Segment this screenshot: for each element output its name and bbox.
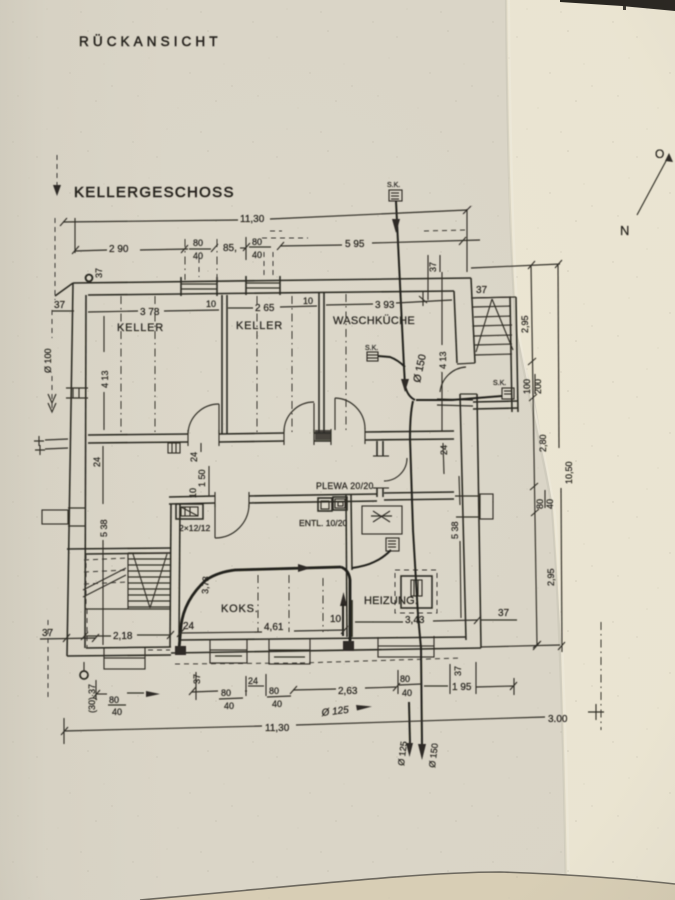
svg-text:4,61: 4,61	[264, 622, 284, 633]
svg-text:24: 24	[439, 445, 449, 455]
svg-text:S.K.: S.K.	[387, 182, 400, 189]
svg-text:100: 100	[522, 379, 532, 394]
svg-text:S.K.: S.K.	[493, 380, 506, 387]
svg-text:3 78: 3 78	[140, 307, 160, 318]
svg-text:ENTL. 10/20: ENTL. 10/20	[299, 518, 347, 528]
svg-text:KELLER: KELLER	[236, 320, 283, 332]
svg-text:37: 37	[192, 674, 202, 684]
svg-text:10: 10	[303, 296, 313, 306]
svg-text:4 13: 4 13	[438, 351, 448, 369]
svg-text:24: 24	[92, 457, 102, 467]
svg-text:WASCHKÜCHE: WASCHKÜCHE	[333, 315, 415, 327]
svg-text:1 50: 1 50	[197, 469, 207, 487]
svg-text:HEIZUNG.: HEIZUNG.	[364, 595, 418, 607]
svg-text:10: 10	[188, 488, 198, 498]
svg-text:10,50: 10,50	[564, 461, 574, 484]
svg-text:PLEWA 20/20: PLEWA 20/20	[316, 481, 374, 491]
svg-text:11,30: 11,30	[265, 723, 290, 734]
svg-text:3.00: 3.00	[548, 714, 568, 725]
svg-text:37: 37	[94, 268, 104, 278]
svg-text:40: 40	[272, 699, 282, 709]
svg-text:10: 10	[206, 299, 216, 309]
svg-text:3,78: 3,78	[200, 576, 211, 594]
svg-text:2,63: 2,63	[338, 686, 358, 697]
svg-text:2,95: 2,95	[546, 568, 556, 586]
svg-text:5 38: 5 38	[99, 519, 109, 537]
svg-text:KELLERGESCHOSS: KELLERGESCHOSS	[74, 184, 235, 201]
svg-text:3 93: 3 93	[375, 300, 395, 311]
svg-text:2 65: 2 65	[255, 303, 275, 314]
svg-text:80: 80	[269, 686, 279, 696]
svg-text:80: 80	[252, 237, 262, 247]
svg-text:4 13: 4 13	[100, 370, 110, 388]
svg-text:40: 40	[112, 707, 122, 717]
svg-text:KOKS.: KOKS.	[221, 603, 259, 615]
svg-text:40: 40	[402, 688, 412, 698]
svg-text:2×12/12: 2×12/12	[179, 523, 211, 533]
svg-text:KELLER: KELLER	[117, 322, 164, 334]
svg-text:24: 24	[248, 676, 258, 686]
svg-text:37: 37	[476, 285, 488, 296]
svg-text:24: 24	[183, 621, 195, 632]
svg-text:3,43: 3,43	[405, 615, 425, 626]
svg-text:Ø 100: Ø 100	[43, 348, 53, 373]
svg-text:2 90: 2 90	[109, 244, 129, 255]
svg-text:80: 80	[535, 499, 545, 509]
svg-text:N: N	[620, 223, 629, 238]
svg-text:5 38: 5 38	[450, 521, 460, 539]
svg-text:80: 80	[109, 695, 119, 705]
svg-text:40: 40	[193, 251, 203, 261]
svg-text:80: 80	[400, 674, 410, 684]
svg-text:24: 24	[189, 452, 199, 462]
svg-text:37: 37	[498, 608, 510, 619]
svg-text:2,95: 2,95	[520, 315, 530, 333]
svg-text:80: 80	[193, 238, 203, 248]
svg-text:2,18: 2,18	[113, 631, 133, 642]
svg-text:40: 40	[224, 701, 234, 711]
svg-text:5 95: 5 95	[345, 239, 365, 250]
svg-text:11,30: 11,30	[240, 214, 265, 225]
svg-text:37: 37	[453, 666, 463, 676]
svg-text:80: 80	[221, 688, 231, 698]
svg-text:40: 40	[252, 250, 262, 260]
svg-text:37: 37	[54, 300, 66, 311]
svg-text:O: O	[655, 147, 664, 161]
svg-text:10: 10	[330, 614, 342, 625]
svg-text:1 95: 1 95	[452, 682, 472, 693]
svg-text:85,: 85,	[223, 243, 237, 254]
svg-text:2,80: 2,80	[538, 434, 548, 452]
svg-text:37: 37	[428, 262, 438, 272]
svg-text:S.K.: S.K.	[365, 345, 378, 352]
svg-text:40: 40	[545, 499, 555, 509]
svg-text:RÜCKANSICHT: RÜCKANSICHT	[79, 34, 222, 49]
